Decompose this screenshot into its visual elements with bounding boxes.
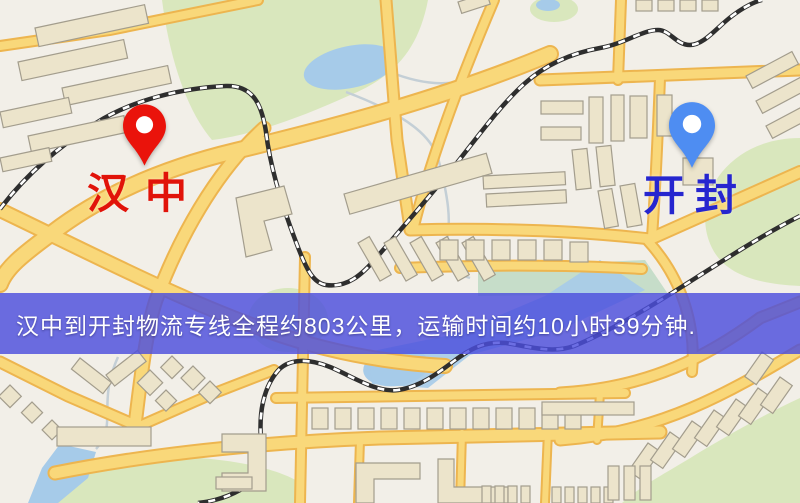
- origin-pin-hole: [136, 116, 153, 133]
- destination-label: 开封: [643, 175, 747, 217]
- origin-pin-icon[interactable]: [122, 103, 167, 167]
- destination-pin-icon[interactable]: [666, 101, 718, 169]
- route-info-banner: 汉中到开封物流专线全程约803公里，运输时间约10小时39分钟.: [0, 293, 800, 354]
- destination-pin-body: [669, 102, 715, 168]
- destination-pin-hole: [683, 115, 701, 133]
- map-canvas: [0, 0, 800, 503]
- origin-label: 汉中: [87, 173, 203, 215]
- origin-pin-body: [123, 104, 166, 165]
- route-info-text: 汉中到开封物流专线全程约803公里，运输时间约10小时39分钟.: [16, 307, 696, 341]
- map-view: 汉中 开封 汉中到开封物流专线全程约803公里，运输时间约10小时39分钟.: [0, 0, 800, 503]
